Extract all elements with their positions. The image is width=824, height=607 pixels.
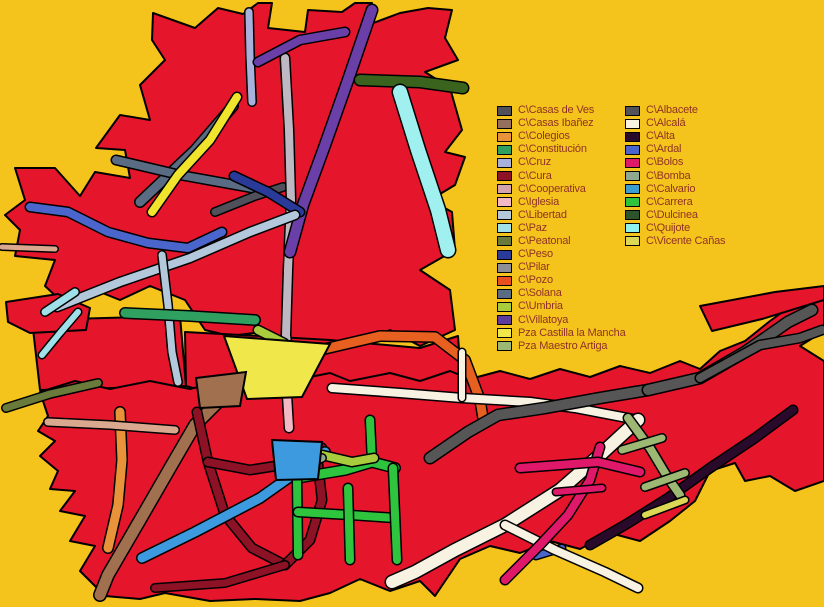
legend-swatch [497, 171, 512, 181]
legend-item: C\Paz [497, 222, 626, 235]
legend-item: C\Pozo [497, 274, 626, 287]
cruz-street [249, 12, 252, 102]
legend-swatch [625, 145, 640, 155]
carrera-street-5 [348, 488, 350, 560]
legend-swatch [497, 276, 512, 286]
legend-swatch [497, 145, 512, 155]
legend-swatch [497, 289, 512, 299]
legend-item: C\Calvario [625, 183, 725, 196]
legend-item: C\Quijote [625, 222, 725, 235]
legend-label: C\Cruz [518, 157, 551, 168]
street-map-page: C\Casas de VesC\Casas IbañezC\ColegiosC\… [0, 0, 824, 607]
legend-swatch [625, 223, 640, 233]
carrera-street-6 [393, 468, 397, 560]
legend-swatch [497, 210, 512, 220]
legend-item: C\Cooperativa [497, 183, 626, 196]
legend-label: C\Iglesia [518, 197, 559, 208]
legend-swatch [497, 132, 512, 142]
legend-item: C\Bolos [625, 156, 725, 169]
legend-item: C\Alcalá [625, 117, 725, 130]
legend-label: C\Bolos [646, 157, 683, 168]
legend-item: C\Cura [497, 169, 626, 182]
legend-item: C\Umbria [497, 300, 626, 313]
legend-label: C\Peatonal [518, 236, 570, 247]
legend-swatch [625, 236, 640, 246]
legend-label: C\Cooperativa [518, 184, 586, 195]
iglesia-street [287, 395, 289, 428]
legend-label: C\Umbria [518, 301, 563, 312]
legend-label: C\Pozo [518, 275, 553, 286]
legend-label: C\Vicente Cañas [646, 236, 725, 247]
legend-swatch [497, 158, 512, 168]
legend-item: C\Dulcinea [625, 209, 725, 222]
legend-label: C\Colegios [518, 131, 570, 142]
legend-swatch [497, 184, 512, 194]
legend-swatch [625, 119, 640, 129]
legend-label: C\Villatoya [518, 315, 568, 326]
legend-swatch [625, 197, 640, 207]
cooperativa-street-2 [2, 247, 55, 249]
legend-swatch [497, 223, 512, 233]
legend-item: C\Casas Ibañez [497, 117, 626, 130]
legend-item: C\Villatoya [497, 314, 626, 327]
legend-item: C\Vicente Cañas [625, 235, 725, 248]
bolos-street-3 [556, 488, 602, 492]
legend-item: C\Iglesia [497, 196, 626, 209]
legend-label: C\Pilar [518, 262, 550, 273]
legend-label: Pza Castilla la Mancha [518, 328, 626, 339]
legend-item: C\Cruz [497, 156, 626, 169]
legend-item: C\Solana [497, 287, 626, 300]
legend-swatch [497, 341, 512, 351]
legend-swatch [625, 106, 640, 116]
legend-item: C\Peso [497, 248, 626, 261]
legend-item: C\Pilar [497, 261, 626, 274]
legend-label: C\Constitución [518, 144, 587, 155]
legend-item: C\Bomba [625, 169, 725, 182]
legend-swatch [497, 106, 512, 116]
legend-swatch [497, 197, 512, 207]
legend-swatch [497, 236, 512, 246]
legend-label: C\Bomba [646, 171, 690, 182]
legend-item: C\Albacete [625, 104, 725, 117]
legend-swatch [497, 119, 512, 129]
legend-swatch [497, 250, 512, 260]
legend-label: C\Paz [518, 223, 547, 234]
legend-item: Pza Castilla la Mancha [497, 327, 626, 340]
legend-item: C\Libertad [497, 209, 626, 222]
legend-item: C\Carrera [625, 196, 725, 209]
legend-swatch [625, 210, 640, 220]
legend-label: C\Calvario [646, 184, 695, 195]
legend-label: C\Casas Ibañez [518, 118, 593, 129]
legend-item: Pza Maestro Artiga [497, 340, 626, 353]
legend-swatch [497, 328, 512, 338]
legend-label: C\Ardal [646, 144, 681, 155]
legend-item: C\Constitución [497, 143, 626, 156]
legend-column-right: C\AlbaceteC\AlcaláC\AltaC\ArdalC\BolosC\… [625, 104, 725, 248]
legend-label: C\Peso [518, 249, 553, 260]
legend-item: C\Colegios [497, 130, 626, 143]
legend-item: C\Ardal [625, 143, 725, 156]
legend-swatch [497, 315, 512, 325]
legend-label: C\Cura [518, 171, 552, 182]
legend-label: C\Quijote [646, 223, 690, 234]
legend-item: C\Peatonal [497, 235, 626, 248]
legend-swatch [625, 171, 640, 181]
legend-swatch [625, 132, 640, 142]
legend-label: C\Solana [518, 288, 562, 299]
legend-label: C\Libertad [518, 210, 567, 221]
calvario-junction [272, 440, 322, 480]
ibanez-junction [196, 372, 246, 408]
legend-label: C\Casas de Ves [518, 105, 594, 116]
legend-swatch [497, 302, 512, 312]
legend-label: C\Alcalá [646, 118, 685, 129]
legend-swatch [625, 184, 640, 194]
legend-swatch [625, 158, 640, 168]
legend-column-left: C\Casas de VesC\Casas IbañezC\ColegiosC\… [497, 104, 626, 353]
legend-item: C\Alta [625, 130, 725, 143]
town-map-svg [0, 0, 824, 607]
legend-label: Pza Maestro Artiga [518, 341, 607, 352]
legend-label: C\Alta [646, 131, 675, 142]
legend-label: C\Dulcinea [646, 210, 698, 221]
legend-label: C\Carrera [646, 197, 693, 208]
legend-label: C\Albacete [646, 105, 698, 116]
legend-swatch [497, 263, 512, 273]
legend-item: C\Casas de Ves [497, 104, 626, 117]
